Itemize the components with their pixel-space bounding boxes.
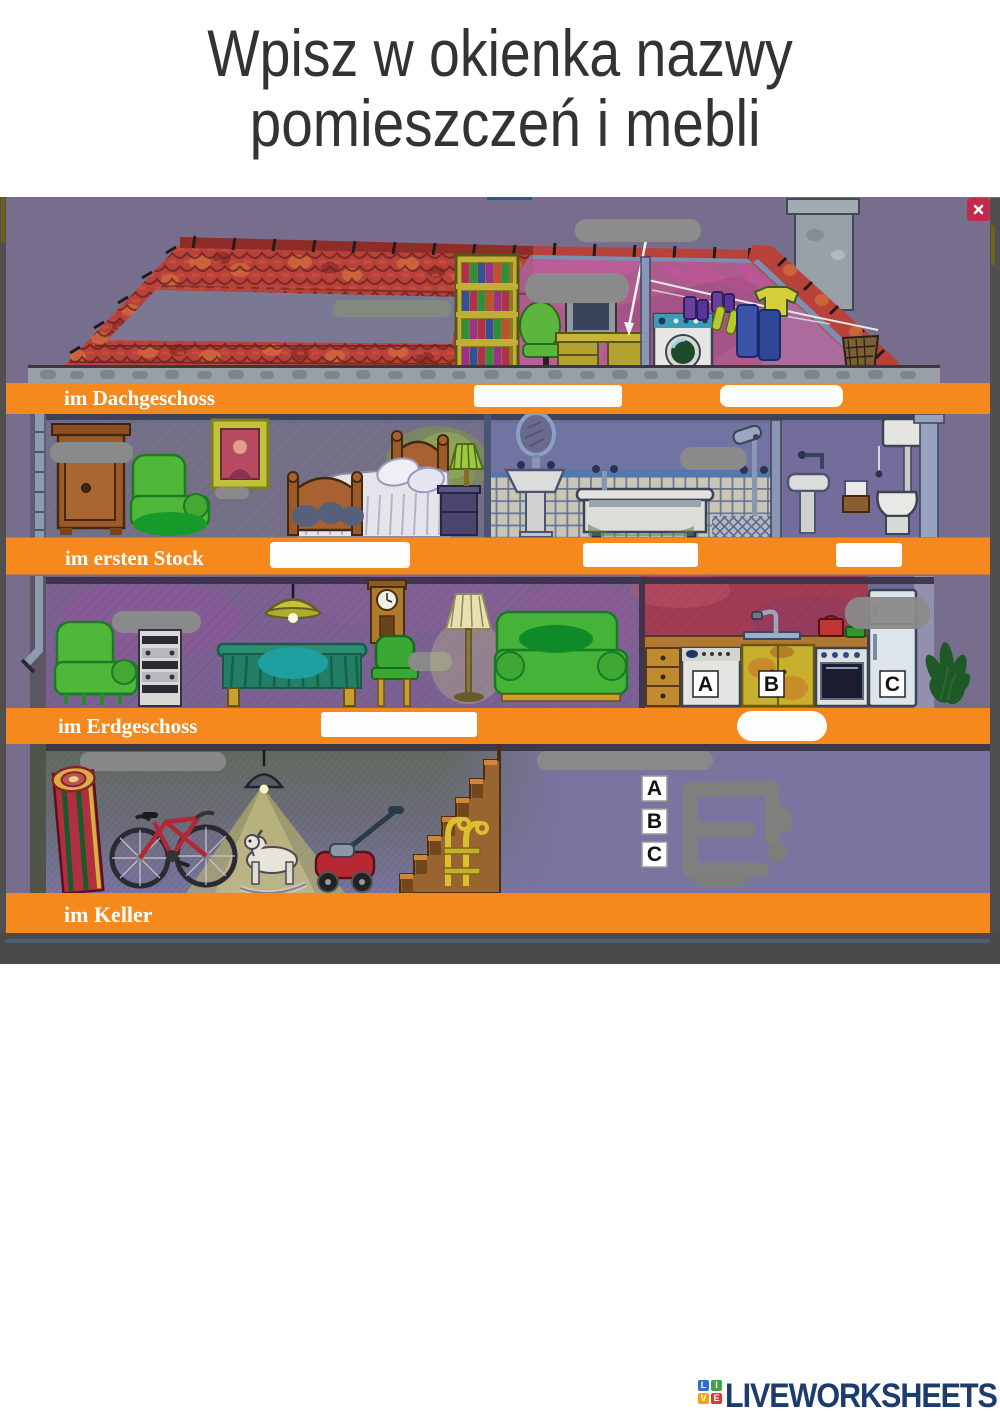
svg-text:im Erdgeschoss: im Erdgeschoss (58, 714, 197, 738)
svg-text:im Keller: im Keller (64, 902, 153, 927)
svg-text:B: B (764, 673, 779, 696)
svg-text:im Dachgeschoss: im Dachgeschoss (64, 386, 215, 410)
svg-text:A: A (698, 673, 713, 696)
svg-text:B: B (647, 810, 662, 833)
svg-text:im ersten Stock: im ersten Stock (65, 546, 204, 570)
svg-text:C: C (647, 843, 662, 866)
svg-text:C: C (885, 673, 900, 696)
svg-text:A: A (647, 777, 662, 800)
